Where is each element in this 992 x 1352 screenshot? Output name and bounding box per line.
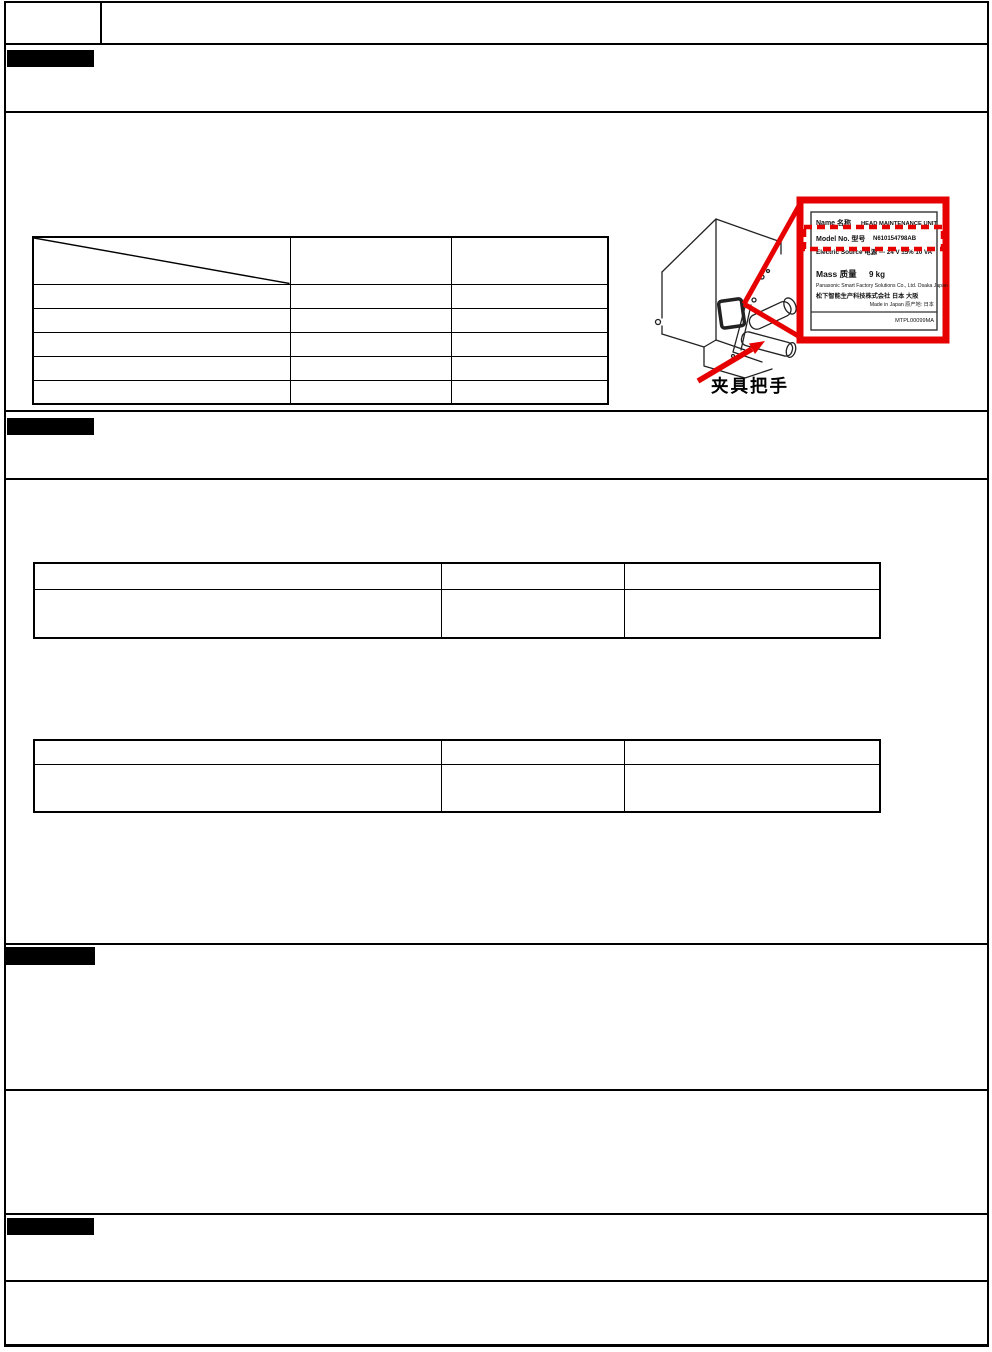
table-header-cell [624, 740, 880, 764]
table-header-cell [34, 740, 441, 764]
header-bottom-rule [4, 43, 989, 45]
section-rule-4 [4, 943, 989, 945]
table-cell [624, 589, 880, 638]
section-rule-5 [4, 1089, 989, 1091]
nameplate-mass-label: Mass 质量 [816, 269, 857, 279]
table-header-cell [441, 563, 624, 589]
table-cell [33, 284, 290, 308]
section-heading-redacted-1 [7, 50, 94, 67]
nameplate-plate-code: MTPL00099MA [895, 318, 934, 324]
table-cell [290, 380, 451, 404]
manual-page: Name 名称 HEAD MAINTENANCE UNIT Model No. … [0, 0, 992, 1352]
table-cell [451, 380, 608, 404]
table-cell [34, 589, 441, 638]
section-heading-redacted-2 [7, 418, 94, 435]
header-cell-divider [100, 1, 102, 45]
table-cell [290, 308, 451, 332]
table-cell [624, 764, 880, 812]
section-heading-redacted-4 [7, 1218, 94, 1235]
table-cell [33, 356, 290, 380]
nameplate-model-label: Model No. 型号 [816, 234, 865, 243]
section-rule-7 [4, 1280, 989, 1282]
nameplate-origin: Made in Japan 原产地: 日本 [870, 300, 934, 308]
table-cell [451, 356, 608, 380]
table-header-cell [441, 740, 624, 764]
diagonal-line [34, 238, 290, 284]
diagonal-header-cell [33, 237, 290, 284]
table-cell [290, 284, 451, 308]
table-cell [33, 380, 290, 404]
nameplate-maker-en: Panasonic Smart Factory Solutions Co., L… [816, 283, 948, 289]
header-left-cell [6, 3, 98, 43]
table-cell [33, 332, 290, 356]
overview-table [32, 236, 609, 405]
callout-wedge-lines [744, 204, 800, 337]
table-cell [290, 356, 451, 380]
section-heading-redacted-3 [6, 947, 95, 965]
table-cell [451, 332, 608, 356]
section-rule-2 [4, 410, 989, 412]
nameplate-model-value: N610154798AB [873, 236, 917, 242]
nameplate-maker-cn: 松下智能生产科技株式会社 日本 大阪 [816, 292, 919, 300]
device-figure: Name 名称 HEAD MAINTENANCE UNIT Model No. … [640, 180, 992, 405]
table-cell [441, 589, 624, 638]
spec-table-a [33, 562, 881, 639]
section-rule-1 [4, 111, 989, 113]
table-cell [451, 308, 608, 332]
table-header-cell [451, 237, 608, 284]
spec-table-b [33, 739, 881, 813]
table-header-cell [290, 237, 451, 284]
table-header-cell [34, 563, 441, 589]
section-rule-3 [4, 478, 989, 480]
table-cell [34, 764, 441, 812]
table-header-cell [624, 563, 880, 589]
table-cell [441, 764, 624, 812]
section-rule-6 [4, 1213, 989, 1215]
table-cell [451, 284, 608, 308]
nameplate-mass-value: 9 kg [869, 270, 885, 279]
clamp-handle-caption: 夹具把手 [711, 376, 789, 396]
header-title-cell [104, 3, 984, 43]
table-cell [290, 332, 451, 356]
table-cell [33, 308, 290, 332]
